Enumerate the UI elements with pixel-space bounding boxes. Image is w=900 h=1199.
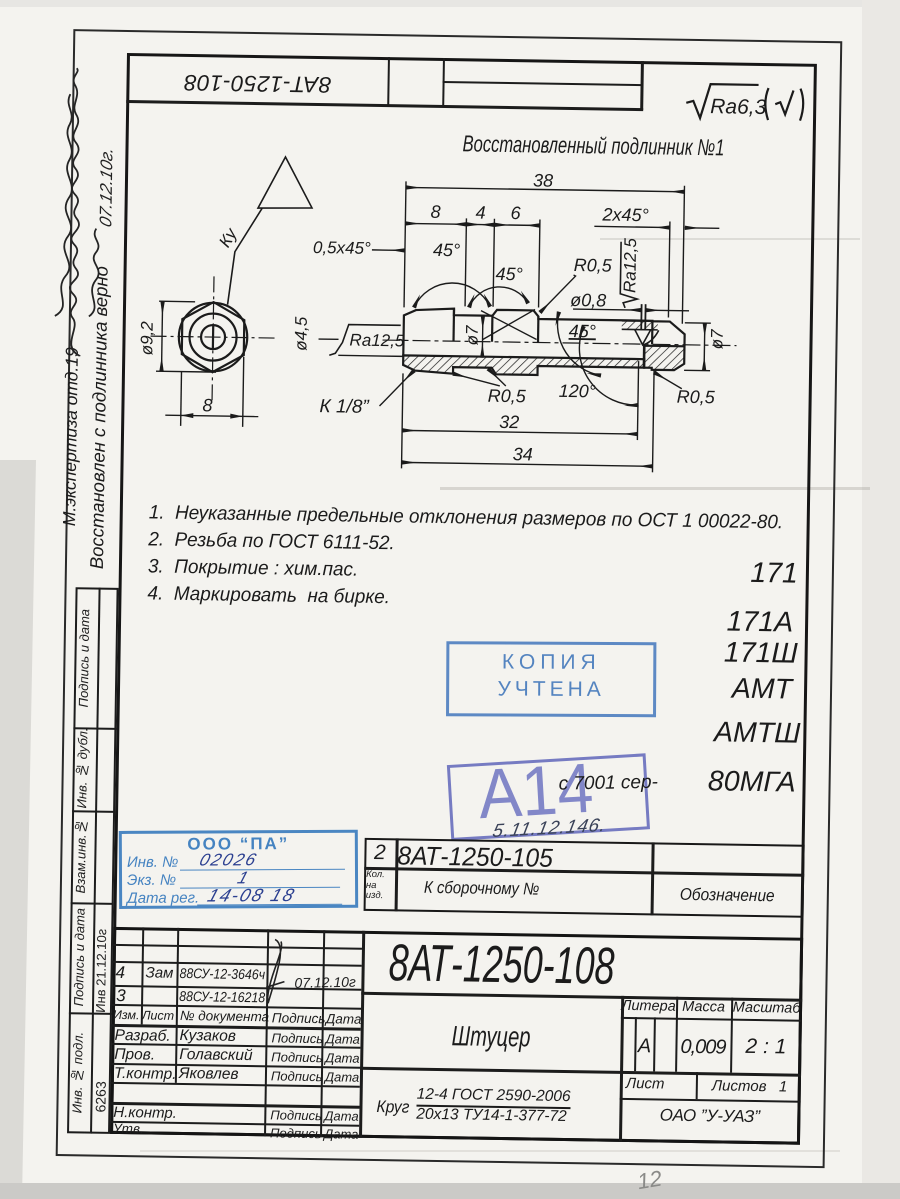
svg-text:Ra12,5: Ra12,5	[349, 331, 405, 351]
svg-text:ø7: ø7	[707, 329, 726, 350]
svg-text:45°: 45°	[433, 240, 461, 260]
svg-text:38: 38	[533, 170, 553, 190]
svg-text:0,5х45°: 0,5х45°	[313, 238, 371, 258]
svg-text:ø0,8: ø0,8	[570, 290, 606, 311]
svg-text:120°: 120°	[559, 381, 597, 402]
svg-text:ø9,2: ø9,2	[137, 321, 157, 356]
svg-text:6: 6	[510, 203, 521, 223]
svg-text:45°: 45°	[495, 264, 523, 284]
svg-text:Ra6,3: Ra6,3	[710, 95, 767, 119]
svg-text:Ra12,5: Ra12,5	[620, 237, 640, 293]
svg-text:ø7: ø7	[462, 325, 481, 346]
svg-text:8: 8	[202, 395, 212, 415]
svg-text:34: 34	[513, 444, 533, 464]
svg-text:32: 32	[499, 412, 519, 432]
svg-text:R0,5: R0,5	[677, 387, 716, 408]
svg-text:К 1/8”: К 1/8”	[319, 396, 370, 418]
svg-text:8: 8	[430, 202, 440, 222]
svg-text:ø4,5: ø4,5	[291, 316, 311, 351]
svg-text:R0,5: R0,5	[488, 386, 527, 407]
svg-text:2х45°: 2х45°	[601, 204, 649, 225]
svg-text:4: 4	[475, 202, 485, 222]
svg-text:R0,5: R0,5	[574, 255, 613, 276]
